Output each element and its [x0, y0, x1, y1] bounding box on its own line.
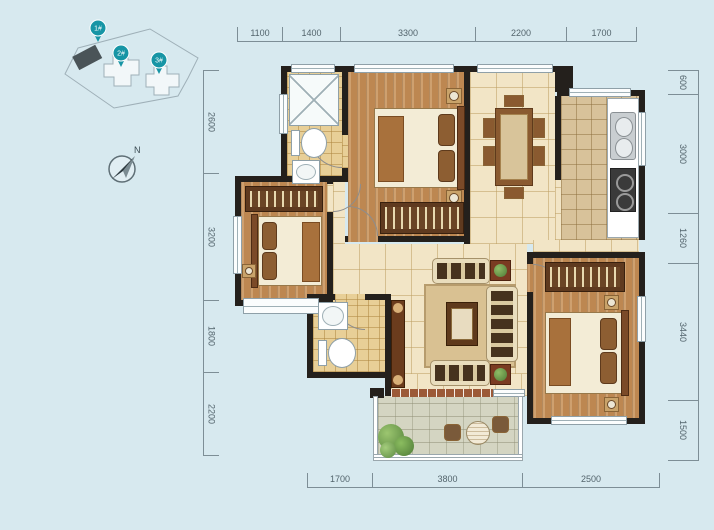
- dim-label: 2200: [511, 28, 531, 38]
- wall-bedroom2-left: [235, 176, 241, 216]
- table-tray: [451, 308, 473, 340]
- wall-bedroom3-top: [527, 252, 645, 258]
- building-pin-label: 2#: [117, 51, 125, 58]
- wall-bath-master-right: [342, 168, 348, 182]
- dim-segment: 2500: [523, 473, 660, 487]
- dining-chair: [533, 146, 545, 166]
- dim-segment: 3000: [668, 95, 698, 214]
- nightstand: [604, 397, 619, 412]
- dim-label: 3800: [437, 474, 457, 484]
- balcony-threshold: [391, 389, 493, 397]
- wall-bathroom2-bottom: [307, 372, 391, 378]
- dim-segment: 3800: [373, 473, 523, 487]
- window-bedroom2-left: [233, 216, 242, 274]
- tv-cabinet: [391, 300, 405, 388]
- dim-label: 3200: [207, 227, 217, 247]
- window-bedroom3-bottom: [551, 416, 627, 425]
- bath-master-door-gap: [342, 135, 348, 168]
- sofa-cushions: [491, 291, 513, 357]
- dim-segment: 1700: [567, 27, 637, 41]
- dim-label: 1700: [591, 28, 611, 38]
- bed-pillow: [600, 318, 617, 350]
- wardrobe-icon: [545, 262, 625, 292]
- wall-bedroom-master-bottom: [345, 236, 348, 242]
- dim-label: 1100: [250, 28, 269, 38]
- dim-label: 1400: [301, 28, 321, 38]
- wall-bedroom3-left: [527, 252, 533, 264]
- burner: [616, 174, 634, 192]
- dim-segment: 3440: [668, 264, 698, 401]
- dim-segment: 3200: [204, 174, 219, 301]
- balcony-table-icon: [466, 421, 490, 445]
- dining-table-icon: [495, 108, 533, 186]
- balcony-rail-left: [373, 396, 378, 456]
- window-bedroom-master: [354, 64, 454, 73]
- plant-icon: [490, 260, 511, 281]
- stove-icon: [610, 168, 636, 212]
- wall-bedroom2-right: [327, 176, 333, 184]
- dim-segment: 1500: [668, 401, 698, 461]
- dim-segment: 1400: [283, 27, 341, 41]
- nightstand: [242, 264, 256, 278]
- dim-segment: 1260: [668, 214, 698, 264]
- balcony-rail-bottom: [373, 454, 523, 461]
- building-pin-label: 1#: [94, 26, 102, 33]
- lamp-icon: [245, 267, 253, 275]
- balcony-rail-right: [518, 396, 523, 456]
- compass-north-label: N: [134, 145, 141, 155]
- wardrobe-icon: [245, 186, 323, 212]
- bed-pillow: [438, 150, 455, 182]
- building-pin-icon: 1#: [90, 20, 106, 42]
- coffee-table-icon: [446, 302, 478, 346]
- bed-pillow: [438, 114, 455, 146]
- toilet-icon: [301, 128, 327, 158]
- wall-bath-master-right: [342, 66, 348, 135]
- dimension-bottom: 1700 3800 2500: [307, 473, 660, 488]
- bed-pillow: [262, 222, 277, 250]
- sink-bowl: [615, 138, 633, 158]
- bed-headboard: [621, 310, 629, 396]
- bay-window-bedroom2: [243, 298, 319, 314]
- window-bath-master: [291, 64, 335, 73]
- dim-label: 1260: [678, 228, 688, 248]
- window-dining: [477, 64, 553, 73]
- dim-label: 600: [678, 75, 688, 90]
- kitchen-sink-icon: [610, 112, 636, 160]
- window-kitchen-top: [569, 88, 631, 97]
- dim-label: 2600: [207, 112, 217, 132]
- lamp-icon: [607, 400, 616, 409]
- decor: [393, 375, 403, 385]
- wardrobe-icon: [380, 202, 464, 234]
- dining-chair: [504, 95, 524, 107]
- dining-chair: [483, 146, 495, 166]
- plant-icon: [394, 436, 414, 456]
- bed-blanket: [549, 318, 571, 386]
- bedroom-master-door-gap: [348, 236, 378, 242]
- dim-segment: 2200: [476, 27, 567, 41]
- dim-label: 1500: [678, 420, 688, 440]
- wall-kitchen-left: [555, 96, 561, 180]
- lamp-icon: [607, 298, 616, 307]
- burner: [616, 193, 634, 211]
- decor: [393, 303, 403, 313]
- sink-icon: [292, 160, 320, 184]
- bed-blanket: [378, 116, 404, 182]
- toilet-icon: [291, 130, 300, 156]
- plant-icon: [380, 442, 396, 458]
- toilet-icon: [318, 340, 327, 366]
- wall-bedroom2-right: [327, 212, 333, 306]
- dim-label: 2200: [207, 404, 217, 424]
- dim-segment: 1700: [307, 473, 373, 487]
- dim-segment: 1100: [237, 27, 283, 41]
- dining-tablecloth: [500, 114, 528, 180]
- window-bedroom3-right: [637, 296, 646, 342]
- dim-segment: 600: [668, 71, 698, 95]
- shower-icon: [289, 74, 339, 126]
- dimension-left: 2600 3200 1800 2200: [203, 70, 219, 456]
- dim-label: 3000: [678, 144, 688, 164]
- site-plan: 1# 2# 3#: [58, 12, 206, 128]
- lamp-icon: [449, 91, 459, 101]
- dining-chair: [533, 118, 545, 138]
- window-bath-master-left: [279, 94, 288, 134]
- sink-bowl: [615, 117, 633, 137]
- bed-headboard: [457, 106, 465, 190]
- dining-chair: [504, 187, 524, 199]
- dim-segment: 2200: [204, 373, 219, 456]
- highlighted-building: [72, 45, 102, 70]
- kitchen-opening-floor: [555, 180, 561, 240]
- balcony-chair: [492, 416, 509, 433]
- bed-pillow: [600, 352, 617, 384]
- wall-bedroom-master-bottom: [378, 236, 470, 242]
- dim-label: 3440: [678, 322, 688, 342]
- bed-blanket: [302, 222, 320, 282]
- dimension-right: 600 3000 1260 3440 1500: [668, 70, 699, 461]
- dim-label: 3300: [398, 28, 418, 38]
- bed-pillow: [262, 252, 277, 280]
- sofa-icon: [432, 258, 490, 284]
- building-footprint: [146, 66, 179, 95]
- hall-kitchen-strip-floor: [533, 240, 639, 252]
- dim-label: 2500: [581, 474, 601, 484]
- nightstand: [604, 295, 619, 310]
- sofa-cushions: [437, 263, 485, 279]
- compass: N: [98, 140, 150, 192]
- plant-icon: [490, 364, 511, 385]
- sofa-cushions: [435, 365, 485, 381]
- dim-label: 1800: [207, 326, 217, 346]
- dim-segment: 3300: [341, 27, 476, 41]
- balcony-chair: [444, 424, 461, 441]
- dim-segment: 1800: [204, 301, 219, 373]
- sofa-icon: [430, 360, 490, 386]
- dimension-top: 1100 1400 3300 2200 1700: [237, 27, 637, 42]
- building-pin-label: 3#: [155, 58, 163, 65]
- toilet-icon: [328, 338, 356, 368]
- dining-chair: [483, 118, 495, 138]
- sofa-icon: [486, 286, 518, 362]
- dim-label: 1700: [330, 474, 350, 484]
- wall-bedroom3-left: [527, 292, 533, 424]
- nightstand: [446, 88, 462, 104]
- sink-icon: [318, 302, 348, 330]
- floor-plan-page: 1# 2# 3# N 1100 1400 3300 2200 1700 2600…: [0, 0, 714, 530]
- dim-segment: 2600: [204, 71, 219, 174]
